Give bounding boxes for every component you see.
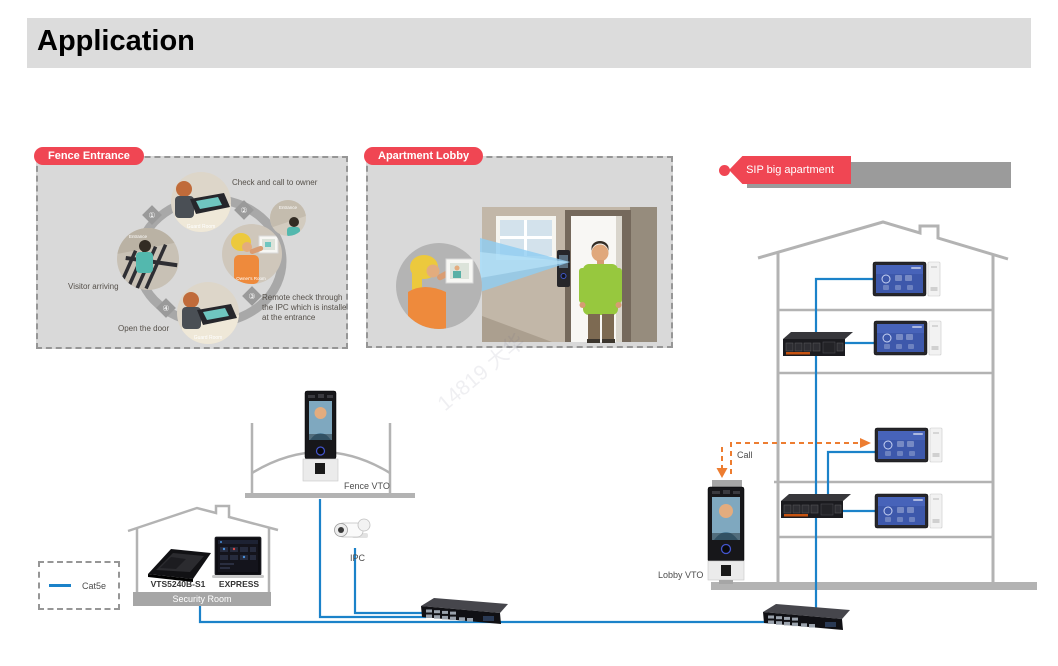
sip-tag: SIP big apartment: [729, 156, 851, 184]
fence-vto-icon: [303, 391, 338, 481]
cat5e-label: Cat5e: [82, 581, 106, 591]
poe-switch-icon-2: [781, 494, 851, 518]
rack-switch-icon-1: [421, 598, 508, 624]
vth-monitor-icon-4: [875, 494, 942, 528]
vth-monitor-icon-3: [875, 428, 942, 462]
security-room-bar: Security Room: [133, 592, 271, 606]
lobby-vto-label: Lobby VTO: [658, 570, 703, 580]
ground-bar: [711, 582, 1037, 590]
red-dot-icon: [719, 165, 730, 176]
ipc-camera-icon: [335, 519, 371, 538]
slide: Application: [0, 0, 1058, 666]
topology-diagram: [0, 0, 1058, 666]
rack-switch-icon-2: [763, 604, 850, 630]
cat5e-line-icon: [49, 584, 71, 587]
apartment-lobby-pill: Apartment Lobby: [364, 147, 483, 165]
vth-monitor-icon-2: [874, 321, 941, 355]
express-label: EXPRESS: [213, 579, 265, 589]
fence-base: [245, 493, 415, 498]
vts-console-icon: [148, 549, 211, 582]
legend-box: Cat5e: [38, 561, 120, 610]
cat5e-cabling: [200, 279, 875, 622]
ipc-label: IPC: [350, 553, 365, 563]
call-label: Call: [737, 450, 753, 460]
poe-switch-icon-1: [783, 332, 853, 356]
vts-label: VTS5240B-S1: [138, 579, 218, 589]
lobby-vto-icon: [708, 480, 744, 584]
fence-entrance-pill: Fence Entrance: [34, 147, 144, 165]
fence-vto-label: Fence VTO: [344, 481, 390, 491]
express-workstation-icon: [212, 537, 264, 578]
vth-monitor-icon-1: [873, 262, 940, 296]
